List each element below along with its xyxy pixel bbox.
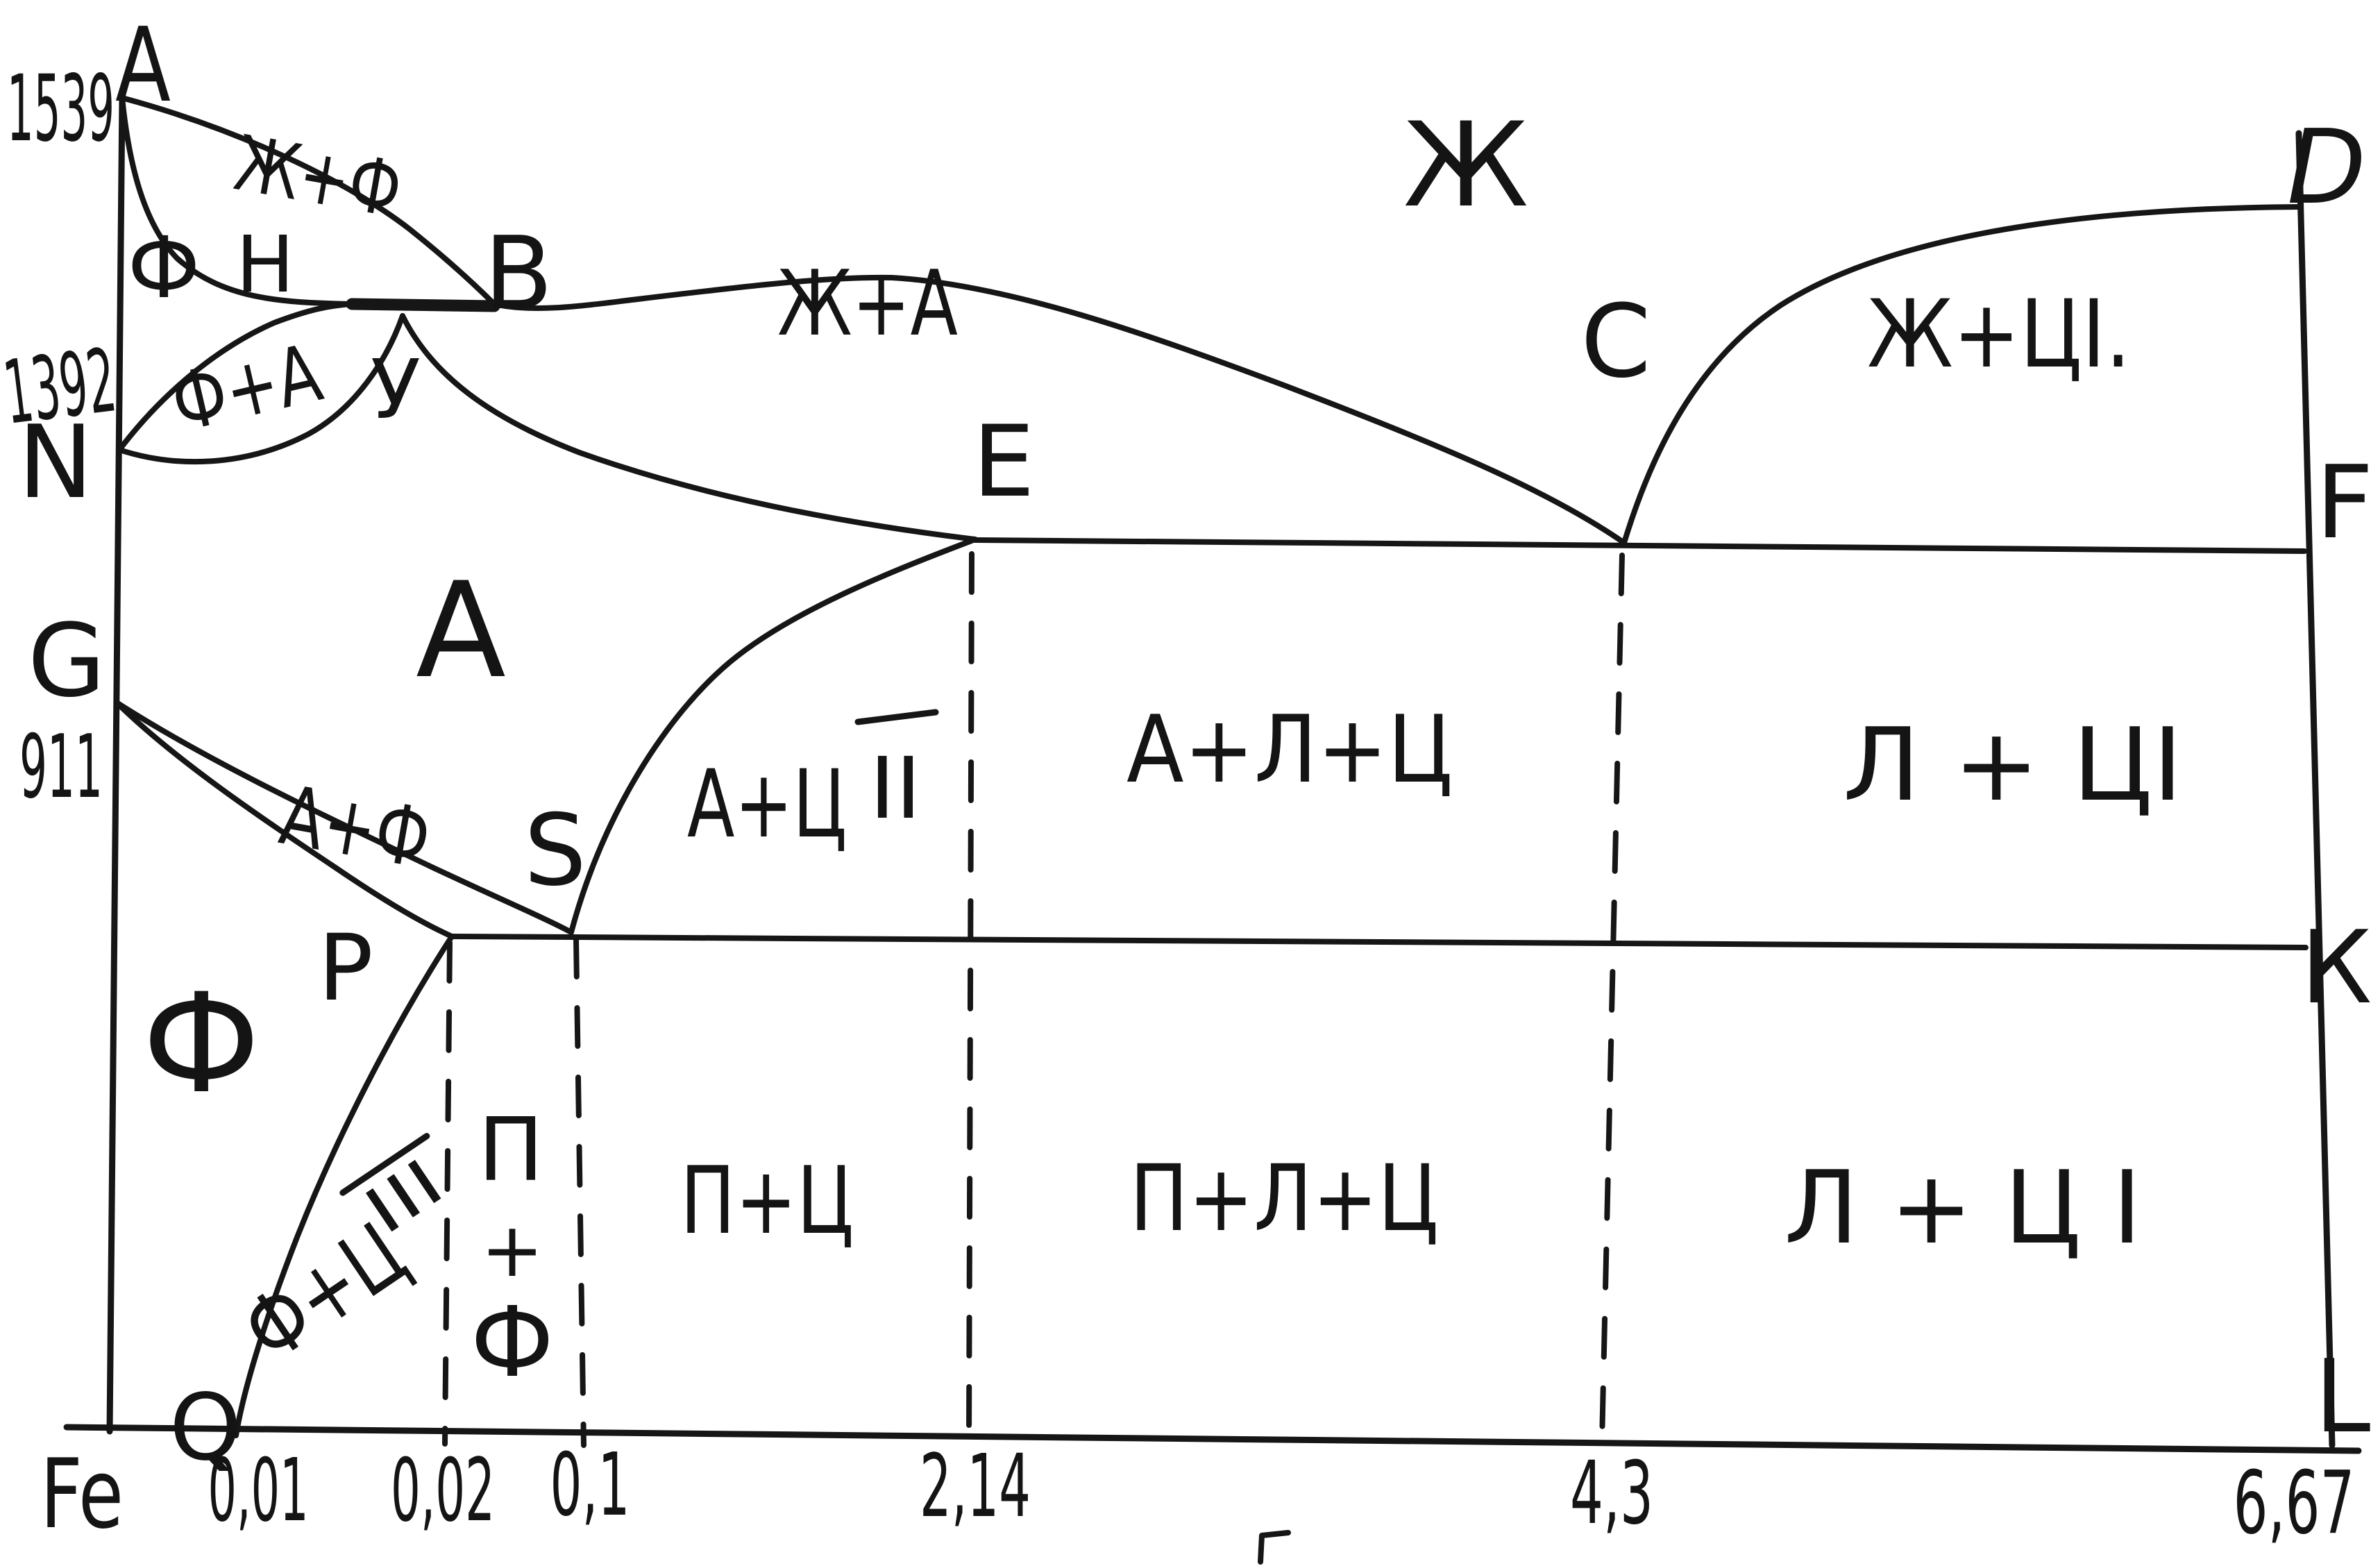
eutectic-ecf (975, 540, 2304, 551)
region-label-p-f-plus: + (481, 1207, 544, 1294)
region-label-p-f-top: П (478, 1099, 544, 1201)
y-axis (110, 98, 122, 1431)
region-label-a-c2-sup: II (870, 739, 922, 838)
region-label-f-a: Ф+А (163, 327, 330, 451)
dashed-line-2-14 (969, 554, 972, 1438)
eutectoid-psk (452, 936, 2306, 948)
region-label-l-c1-bottom: Л + Ц I (1784, 1150, 2142, 1267)
point-label-p: P (318, 915, 373, 1022)
dashed-line-4-3 (1602, 555, 1622, 1442)
dashed-line-0-1 (576, 938, 584, 1445)
peritectic-hb (352, 304, 494, 306)
point-label-b: B (484, 215, 552, 332)
point-label-h: H (236, 220, 294, 310)
region-label-p-c: П+Ц (680, 1147, 854, 1255)
right-axis-667 (2299, 133, 2332, 1445)
point-label-s: S (524, 793, 586, 908)
scanned-phase-diagram: 1539 1392 911 А H B N У G E C D F К L P … (0, 0, 2380, 1566)
point-label-d: D (2287, 108, 2366, 227)
point-label-e: E (972, 405, 1035, 519)
point-label-f: F (2315, 444, 2373, 562)
x-axis-label-0-02: 0,02 (391, 1440, 495, 1541)
point-label-u: У (371, 342, 421, 437)
region-label-ferrite: Ф (142, 963, 260, 1124)
point-label-a: А (115, 6, 171, 125)
region-label-a-l-c: А+Л+Ц (1126, 696, 1453, 804)
region-label-p-l-c: П+Л+Ц (1130, 1145, 1439, 1252)
x-axis-label-0-01: 0,01 (208, 1440, 309, 1541)
region-label-austenite: А (416, 554, 506, 707)
region-label-l-c1-mid: Л + ЦI (1843, 707, 2183, 824)
temp-label-1539: 1539 (7, 56, 115, 162)
region-label-liquid: Ж (1403, 97, 1529, 233)
liquidus-bc (494, 278, 1624, 543)
x-axis-label-4-3: 4,3 (1570, 1443, 1653, 1544)
point-label-c: C (1580, 283, 1651, 401)
temp-label-911: 911 (19, 716, 103, 818)
region-label-f-delta: Ф (127, 219, 200, 317)
region-label-p-f-bottom: Ф (471, 1286, 555, 1399)
x-axis-label-fe: Fe (40, 1438, 124, 1550)
a-c2-sup-overbar (858, 712, 936, 722)
x-axis-label-6-67: 6,67 (2234, 1453, 2355, 1554)
region-label-a-c2-base: А+Ц (687, 750, 847, 859)
point-label-l: L (2315, 1338, 2371, 1456)
point-label-n: N (18, 404, 93, 521)
x-axis-label-0-1: 0,1 (550, 1435, 630, 1535)
region-label-zh-f: Ж+Ф (228, 119, 408, 235)
point-label-k: К (2301, 909, 2372, 1027)
curve-es (571, 539, 975, 932)
point-label-g: G (28, 603, 106, 720)
x-axis-label-2-14: 2,14 (920, 1436, 1031, 1537)
region-label-a-f: А+Ф (273, 767, 437, 887)
region-label-zh-a: Ж+А (777, 251, 958, 356)
fe-c-phase-diagram: 1539 1392 911 А H B N У G E C D F К L P … (0, 0, 2380, 1566)
region-label-zh-c1: Ж+ЦI. (1867, 280, 2131, 389)
stray-mark (1260, 1533, 1288, 1562)
